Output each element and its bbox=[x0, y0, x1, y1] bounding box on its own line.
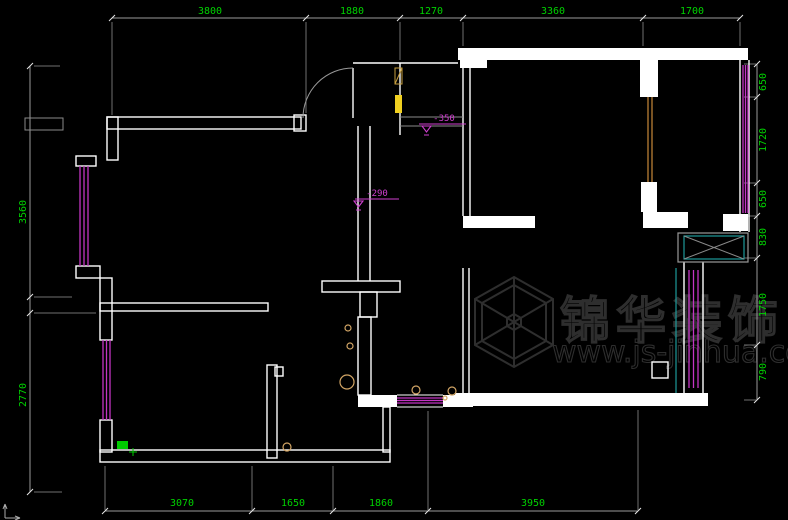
level-marks: -350 -290 bbox=[354, 114, 466, 210]
drain-circle-icon bbox=[347, 343, 353, 349]
dim-label: 2770 bbox=[18, 383, 29, 407]
dim-label: 1700 bbox=[680, 6, 704, 17]
dim-label: 1860 bbox=[369, 498, 393, 509]
switch-green-icon bbox=[117, 441, 137, 456]
svg-text:-350: -350 bbox=[433, 114, 455, 124]
window-lower-left bbox=[103, 340, 110, 420]
window-upper-right bbox=[743, 65, 748, 213]
svg-text:-290: -290 bbox=[366, 189, 388, 199]
distribution-box-icon bbox=[395, 95, 402, 113]
dim-label: 3950 bbox=[521, 498, 545, 509]
ac-shaft-xbox-icon bbox=[678, 233, 748, 262]
watermark: 锦华装饰 www.js-jinhua.com bbox=[475, 277, 788, 370]
ucs-axis-icon bbox=[3, 504, 20, 520]
dim-label: 650 bbox=[758, 190, 769, 208]
dim-label: 3070 bbox=[170, 498, 194, 509]
drain-circle-icon bbox=[345, 325, 351, 331]
watermark-logo-icon bbox=[475, 277, 553, 367]
dim-label: 1720 bbox=[758, 128, 769, 152]
watermark-url: www.js-jinhua.com bbox=[552, 335, 788, 370]
drain-circle-icon bbox=[412, 386, 420, 394]
dimension-left: 3560 2770 bbox=[18, 63, 96, 495]
drain-circle-icon bbox=[340, 375, 354, 389]
dim-label: 1880 bbox=[340, 6, 364, 17]
floor-plan-drawing: 锦华装饰 www.js-jinhua.com 3800 1880 1270 33… bbox=[0, 0, 788, 520]
bay-window-left bbox=[80, 166, 88, 266]
level-symbol-icon bbox=[422, 126, 431, 135]
dim-label: 650 bbox=[758, 73, 769, 91]
walls bbox=[25, 48, 749, 462]
dim-label: 1750 bbox=[758, 293, 769, 317]
dim-label: 1650 bbox=[281, 498, 305, 509]
dim-label: 790 bbox=[758, 363, 769, 381]
window-bottom bbox=[397, 398, 443, 403]
cad-viewport: 锦华装饰 www.js-jinhua.com 3800 1880 1270 33… bbox=[0, 0, 788, 520]
dim-label: 1270 bbox=[419, 6, 443, 17]
dim-label: 3800 bbox=[198, 6, 222, 17]
drain-circle-icon bbox=[448, 387, 456, 395]
electrical-panel-icon bbox=[395, 68, 402, 113]
door-swing-arc-icon bbox=[303, 68, 353, 118]
entry-door bbox=[303, 68, 353, 118]
dim-label: 3560 bbox=[18, 200, 29, 224]
sliding-door-icon bbox=[648, 97, 652, 182]
dim-label: 3360 bbox=[541, 6, 565, 17]
level-mark: -290 bbox=[354, 189, 399, 210]
dim-label: 830 bbox=[758, 228, 769, 246]
